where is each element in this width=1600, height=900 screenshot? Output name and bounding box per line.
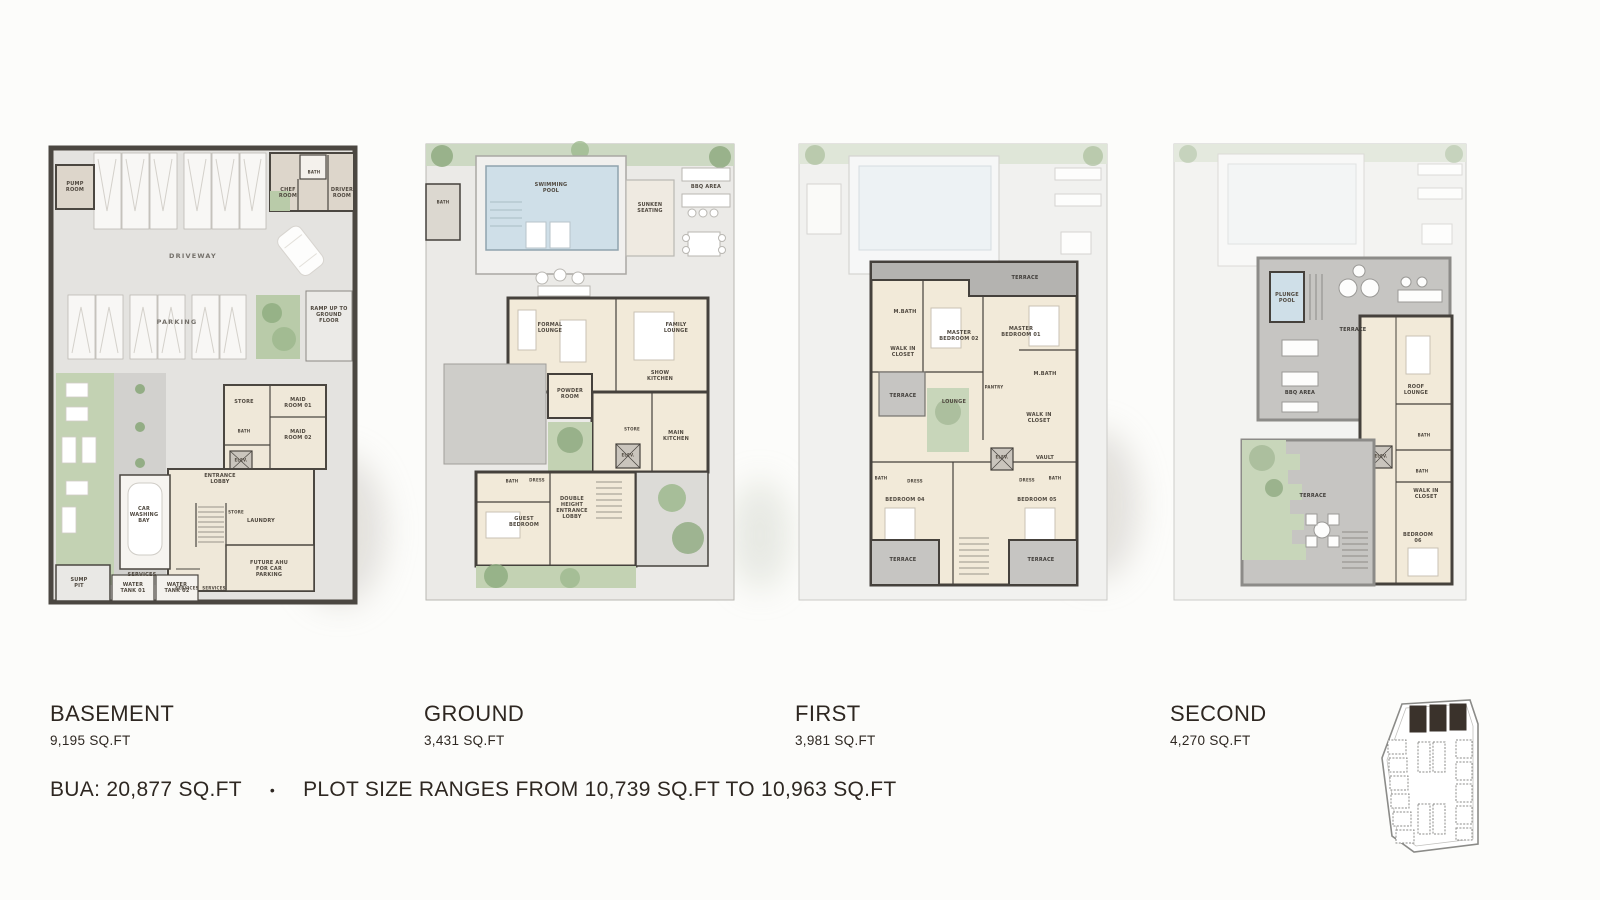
room-label-powder-room: POWDER ROOM (554, 388, 586, 400)
floorplan-sheet: { "plans": [ { "id": "basement", "title"… (0, 0, 1600, 900)
bbq-counter (682, 194, 730, 207)
room-label-bath: BATH (238, 430, 251, 435)
room-label-terrace: TERRACE (889, 393, 917, 399)
tree-icon (1445, 145, 1463, 163)
room-label-dress: DRESS (907, 480, 923, 485)
room-label-main-kitchen: MAIN KITCHEN (661, 430, 691, 442)
tree-icon (805, 145, 825, 165)
room-label-terrace: TERRACE (1012, 275, 1039, 281)
room-label-bath: BATH (1416, 470, 1429, 475)
tree-icon (431, 145, 453, 167)
sunken-seating (626, 180, 674, 256)
room-label-formal-lounge: FORMAL LOUNGE (534, 322, 566, 334)
tree-icon (272, 327, 296, 351)
room-label-parking: PARKING (157, 319, 198, 327)
plan-basement: PUMP ROOM BATH CHEF ROOM DRIVER ROOM DRI… (48, 145, 358, 605)
pool-lounger (550, 222, 570, 248)
room-label-bath: BATH (308, 171, 321, 176)
round-table (1353, 265, 1365, 277)
floor-area-basement: 9,195 SQ.FT (50, 733, 131, 748)
room-label-laundry: LAUNDRY (247, 518, 275, 524)
pool-lounger (526, 222, 546, 248)
bua-value: BUA: 20,877 SQ.FT (50, 778, 242, 802)
shrub-icon (135, 384, 145, 394)
tree-icon (672, 522, 704, 554)
room-label-m-bath: M.BATH (1033, 371, 1057, 377)
room-label-sunken-seating: SUNKEN SEATING (633, 202, 667, 214)
floor-title-first: FIRST (795, 701, 861, 727)
tree-icon (557, 427, 583, 453)
room-label-terrace: TERRACE (887, 557, 919, 563)
room-label-lounge: LOUNGE (940, 399, 968, 405)
room-label-bath: BATH (1049, 477, 1062, 482)
floor-title-basement: BASEMENT (50, 701, 174, 727)
room-label-store: STORE (624, 428, 640, 433)
tree-icon (560, 568, 580, 588)
room-label-bedroom-05: BEDROOM 05 (1014, 497, 1060, 503)
room-label-maid-room-01: MAID ROOM 01 (284, 397, 312, 409)
bbq-counter (1282, 402, 1318, 412)
round-table (1361, 279, 1379, 297)
lounge-sofa (1406, 336, 1430, 374)
tree-icon (484, 564, 508, 588)
courtyard (444, 364, 546, 464)
shrub-icon (135, 422, 145, 432)
bed (1408, 548, 1438, 576)
room-label-walk-in-closet: WALK IN CLOSET (1023, 412, 1055, 424)
bbq-counter (682, 168, 730, 181)
room-label-terrace: TERRACE (1025, 557, 1057, 563)
ghost-room (807, 184, 841, 234)
tree-icon (1265, 479, 1283, 497)
ramp-corridor (306, 291, 352, 361)
room-label-maid-room-02: MAID ROOM 02 (284, 429, 312, 441)
room-label-m-bath: M.BATH (893, 309, 917, 315)
first-drawing (793, 140, 1113, 605)
room-label-entrance-lobby: DOUBLE HEIGHT ENTRANCE LOBBY (552, 496, 592, 520)
bed (885, 508, 915, 544)
room-label-driver-room: DRIVER ROOM (329, 187, 355, 199)
tree-icon (658, 484, 686, 512)
floor-area-ground: 3,431 SQ.FT (424, 733, 505, 748)
bed (931, 308, 961, 348)
room-label-chef-room: CHEF ROOM (277, 187, 299, 199)
room-label-bath: BATH (506, 480, 519, 485)
room-label-bedroom-04: BEDROOM 04 (882, 497, 928, 503)
tree-icon (1249, 445, 1275, 471)
floor-title-ground: GROUND (424, 701, 524, 727)
room-label-future-ahu: FUTURE AHU FOR CAR PARKING (244, 560, 294, 578)
key-plan (1372, 696, 1484, 858)
room-label-driveway: DRIVEWAY (169, 253, 217, 261)
room-label-bedroom-06: BEDROOM 06 (1400, 532, 1436, 544)
key-plan-drawing (1372, 696, 1484, 858)
bua-summary: BUA: 20,877 SQ.FT • PLOT SIZE RANGES FRO… (50, 778, 897, 802)
room-label-terrace: TERRACE (1337, 327, 1369, 333)
floor-area-first: 3,981 SQ.FT (795, 733, 876, 748)
room-label-terrace: TERRACE (1297, 493, 1329, 499)
room-label-plunge-pool: PLUNGE POOL (1273, 292, 1301, 304)
tree-icon (262, 303, 282, 323)
room-label-elev: ELEV. (995, 456, 1008, 461)
pool-inner-ghost (1228, 164, 1356, 244)
bullet-separator: • (270, 782, 275, 798)
basement-drawing (48, 145, 358, 605)
pool-inner-ghost (859, 166, 991, 250)
shrub-icon (135, 458, 145, 468)
room-label-walk-in-closet: WALK IN CLOSET (887, 346, 919, 358)
dining-table (1282, 340, 1318, 356)
sofa (634, 312, 674, 360)
room-label-car-washing-bay: CAR WASHING BAY (129, 506, 159, 524)
round-table (1339, 279, 1357, 297)
room-label-family-lounge: FAMILY LOUNGE (660, 322, 692, 334)
room-label-water-tank-01: WATER TANK 01 (119, 582, 147, 594)
planter (256, 295, 300, 359)
parking-stalls-middle (68, 295, 246, 359)
room-label-entrance-lobby: ENTRANCE LOBBY (201, 473, 239, 485)
room-label-swimming-pool: SWIMMING POOL (529, 182, 573, 194)
room-label-show-kitchen: SHOW KITCHEN (637, 370, 683, 382)
room-label-store: STORE (234, 399, 254, 405)
room-label-bath: BATH (875, 477, 888, 482)
room-label-dress: DRESS (1019, 479, 1035, 484)
plan-first: TERRACE M.BATH MASTER BEDROOM 02 MASTER … (793, 140, 1113, 605)
room-label-services: SERVICES (128, 572, 157, 578)
bench (1398, 290, 1442, 302)
room-label-pantry: PANTRY (985, 386, 1004, 391)
room-label-vault: VAULT (1033, 455, 1057, 461)
room-label-water-tank-02: WATER TANK 02 (163, 582, 191, 594)
outdoor-dining-table (688, 232, 720, 256)
room-label-elev: ELEV. (1374, 455, 1387, 460)
highlighted-plots (1410, 704, 1466, 732)
bath-room (426, 184, 460, 240)
room-label-pump-room: PUMP ROOM (63, 181, 87, 193)
tree-icon (709, 146, 731, 168)
plot-size-note: PLOT SIZE RANGES FROM 10,739 SQ.FT TO 10… (303, 778, 896, 802)
room-label-dress: DRESS (529, 479, 545, 484)
room-label-sump-pit: SUMP PIT (67, 577, 91, 589)
room-label-master-bedroom-02: MASTER BEDROOM 02 (937, 330, 981, 342)
plan-second: PLUNGE POOL TERRACE BBQ AREA ROOF LOUNGE… (1170, 140, 1470, 605)
room-label-guest-bedroom: GUEST BEDROOM (507, 516, 541, 528)
garden (56, 373, 114, 585)
room-label-roof-lounge: ROOF LOUNGE (1401, 384, 1431, 396)
plan-ground: BATH SWIMMING POOL SUNKEN SEATING BBQ AR… (420, 140, 740, 605)
room-label-bath: BATH (437, 201, 450, 206)
bed (1025, 508, 1055, 544)
room-label-services: SERVICES (202, 587, 225, 592)
bbq-table (1282, 372, 1318, 386)
room-label-master-bedroom-01: MASTER BEDROOM 01 (999, 326, 1043, 338)
room-label-ramp: RAMP UP TO GROUND FLOOR (309, 306, 349, 324)
room-label-bath: BATH (1418, 434, 1431, 439)
floor-title-second: SECOND (1170, 701, 1267, 727)
room-label-elev: ELEV. (621, 454, 634, 459)
room-label-bbq-area: BBQ AREA (686, 184, 726, 190)
floor-area-second: 4,270 SQ.FT (1170, 733, 1251, 748)
tree-icon (1179, 145, 1197, 163)
room-label-store: STORE (228, 511, 244, 516)
tree-icon (1083, 146, 1103, 166)
ground-drawing (420, 140, 740, 605)
room-label-bbq-area: BBQ AREA (1280, 390, 1320, 396)
room-label-walk-in-closet: WALK IN CLOSET (1410, 488, 1442, 500)
room-label-elev: ELEV. (234, 459, 247, 464)
